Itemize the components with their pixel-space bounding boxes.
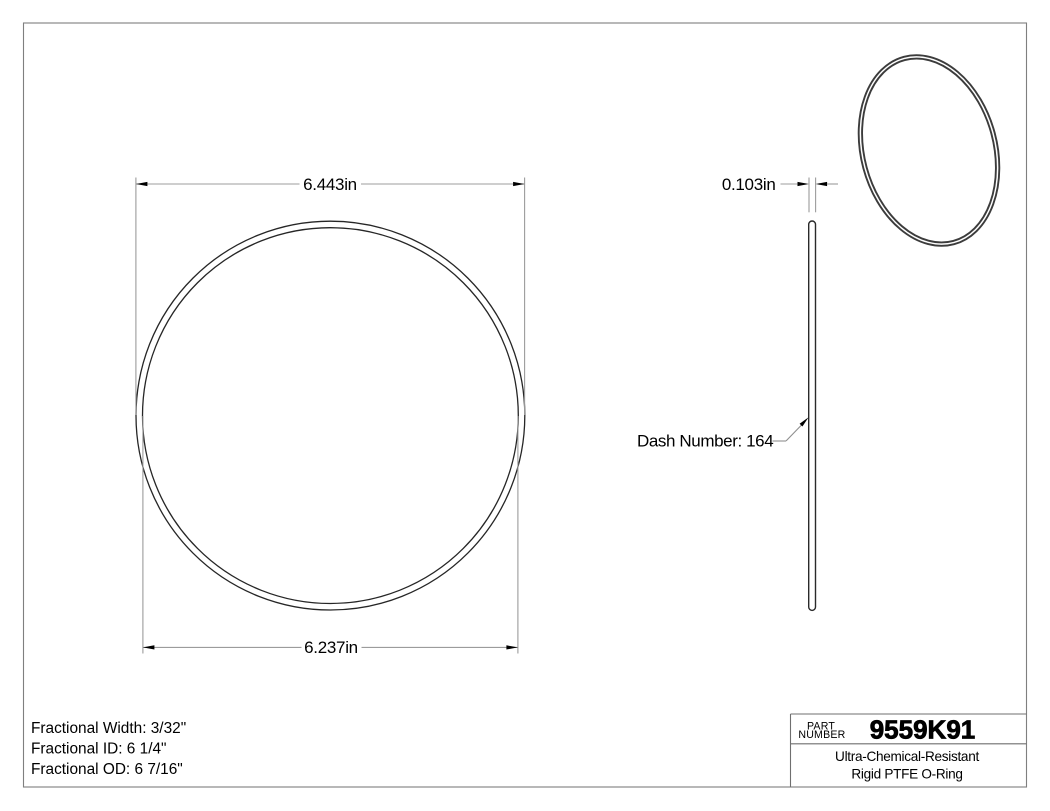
svg-text:6.237in: 6.237in (304, 638, 358, 657)
svg-text:Fractional ID: 6 1/4": Fractional ID: 6 1/4" (31, 741, 167, 758)
svg-text:6.443in: 6.443in (303, 175, 357, 194)
svg-text:Dash Number: 164: Dash Number: 164 (637, 432, 773, 451)
svg-text:Rigid PTFE O-Ring: Rigid PTFE O-Ring (851, 766, 962, 781)
svg-text:Fractional Width: 3/32": Fractional Width: 3/32" (31, 720, 186, 737)
svg-text:0.103in: 0.103in (722, 175, 776, 194)
svg-text:Fractional OD: 6 7/16": Fractional OD: 6 7/16" (31, 761, 183, 778)
svg-text:NUMBER: NUMBER (798, 729, 845, 741)
svg-text:Ultra-Chemical-Resistant: Ultra-Chemical-Resistant (835, 749, 979, 764)
svg-text:9559K91: 9559K91 (870, 714, 976, 744)
